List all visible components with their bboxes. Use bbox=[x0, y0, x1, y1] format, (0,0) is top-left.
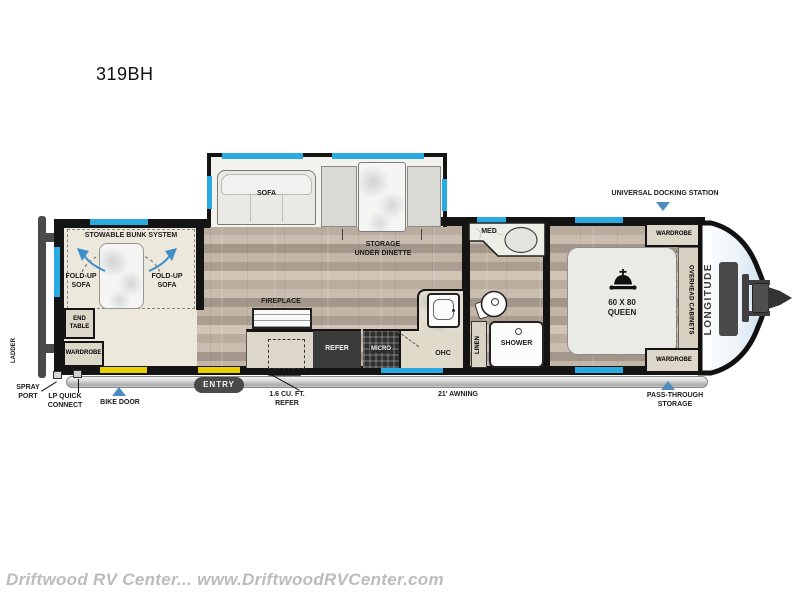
hitch-jack-post bbox=[742, 274, 749, 322]
fold-up-sofa-left-label: FOLD-UP SOFA bbox=[62, 273, 100, 291]
propane-cover bbox=[719, 262, 738, 336]
kitchen-sink bbox=[427, 293, 460, 328]
pass-through-label: PASS-THROUGH STORAGE bbox=[640, 392, 710, 410]
bed-size-label: 60 X 80 QUEEN bbox=[568, 298, 676, 318]
window bbox=[207, 176, 212, 209]
window bbox=[332, 153, 424, 159]
dinette-bench-right bbox=[407, 166, 441, 227]
microwave: MICRO bbox=[363, 329, 399, 368]
spray-port-fitting bbox=[53, 371, 62, 379]
refrigerator: REFER bbox=[313, 329, 361, 368]
page-title: 319BH bbox=[96, 64, 154, 85]
universal-docking-arrow-icon bbox=[656, 202, 670, 211]
hitch-box bbox=[752, 283, 769, 313]
storage-under-dinette-label: STORAGE UNDER DINETTE bbox=[331, 241, 435, 259]
window bbox=[575, 217, 623, 223]
lp-quick-connect-label: LP QUICK CONNECT bbox=[42, 393, 88, 411]
shower: SHOWER bbox=[489, 321, 544, 368]
fold-arrow-left-icon bbox=[76, 247, 106, 273]
window bbox=[575, 367, 623, 373]
fold-arrow-right-icon bbox=[148, 247, 178, 273]
wardrobe-rear: WARDROBE bbox=[63, 341, 104, 367]
pass-through-arrow-icon bbox=[661, 381, 675, 390]
entry-label: ENTRY bbox=[194, 377, 244, 393]
awning-label: 21' AWNING bbox=[428, 391, 488, 400]
universal-docking-label: UNIVERSAL DOCKING STATION bbox=[598, 190, 732, 199]
storage-leader-right bbox=[421, 229, 422, 240]
bike-door-marker bbox=[100, 367, 147, 373]
fold-up-sofa-right-label: FOLD-UP SOFA bbox=[148, 273, 186, 291]
entry-door-marker bbox=[198, 367, 240, 373]
window bbox=[90, 219, 148, 225]
wardrobe-front-bottom: WARDROBE bbox=[645, 348, 703, 373]
brand-label: LONGITUDE bbox=[703, 263, 714, 335]
wardrobe-front-top: WARDROBE bbox=[645, 223, 703, 247]
sink-faucet-dot bbox=[452, 309, 455, 312]
storage-leader-left bbox=[342, 229, 343, 240]
sofa-label: SOFA bbox=[217, 190, 316, 199]
awning-tube bbox=[66, 376, 708, 388]
bike-door-label: BIKE DOOR bbox=[100, 399, 140, 408]
lp-connect-fitting bbox=[73, 370, 82, 378]
ohc-label: OHC bbox=[430, 350, 456, 359]
spray-port-label: SPRAY PORT bbox=[10, 384, 46, 402]
bunk-room-wall bbox=[196, 224, 204, 310]
ladder-rail bbox=[38, 216, 46, 378]
ladder-label: LADDER bbox=[8, 326, 22, 374]
brand-panel: LONGITUDE bbox=[700, 256, 717, 342]
toilet bbox=[475, 288, 509, 324]
linen-cabinet: LINEN bbox=[471, 321, 487, 368]
bike-door-arrow-icon bbox=[112, 387, 126, 396]
dinette-bench-left bbox=[321, 166, 357, 227]
fireplace-label: FIREPLACE bbox=[247, 298, 315, 307]
exterior-refer-label: 1.6 CU. FT. REFER bbox=[258, 391, 316, 409]
watermark: Driftwood RV Center... www.DriftwoodRVCe… bbox=[6, 570, 444, 590]
end-table: END TABLE bbox=[64, 308, 95, 339]
kitchen-counter-front bbox=[399, 329, 463, 368]
dinette-table bbox=[358, 162, 406, 232]
floorplan-page: 319BH LADDER SOFA STORAGE UNDER DINETTE bbox=[0, 0, 800, 600]
fireplace bbox=[252, 308, 312, 329]
window bbox=[442, 179, 447, 211]
queen-bed: 60 X 80 QUEEN bbox=[567, 247, 677, 355]
cabinet-overhang-dash bbox=[676, 250, 677, 353]
crown-icon bbox=[608, 268, 638, 294]
med-label: MED bbox=[476, 228, 502, 237]
under-counter-refer-outline bbox=[268, 339, 305, 369]
hitch-coupler bbox=[768, 285, 794, 311]
lp-connect-leader bbox=[78, 379, 79, 393]
sink-basin bbox=[433, 299, 454, 320]
window bbox=[54, 247, 60, 297]
shower-head-dot bbox=[515, 328, 522, 335]
window bbox=[222, 153, 303, 159]
